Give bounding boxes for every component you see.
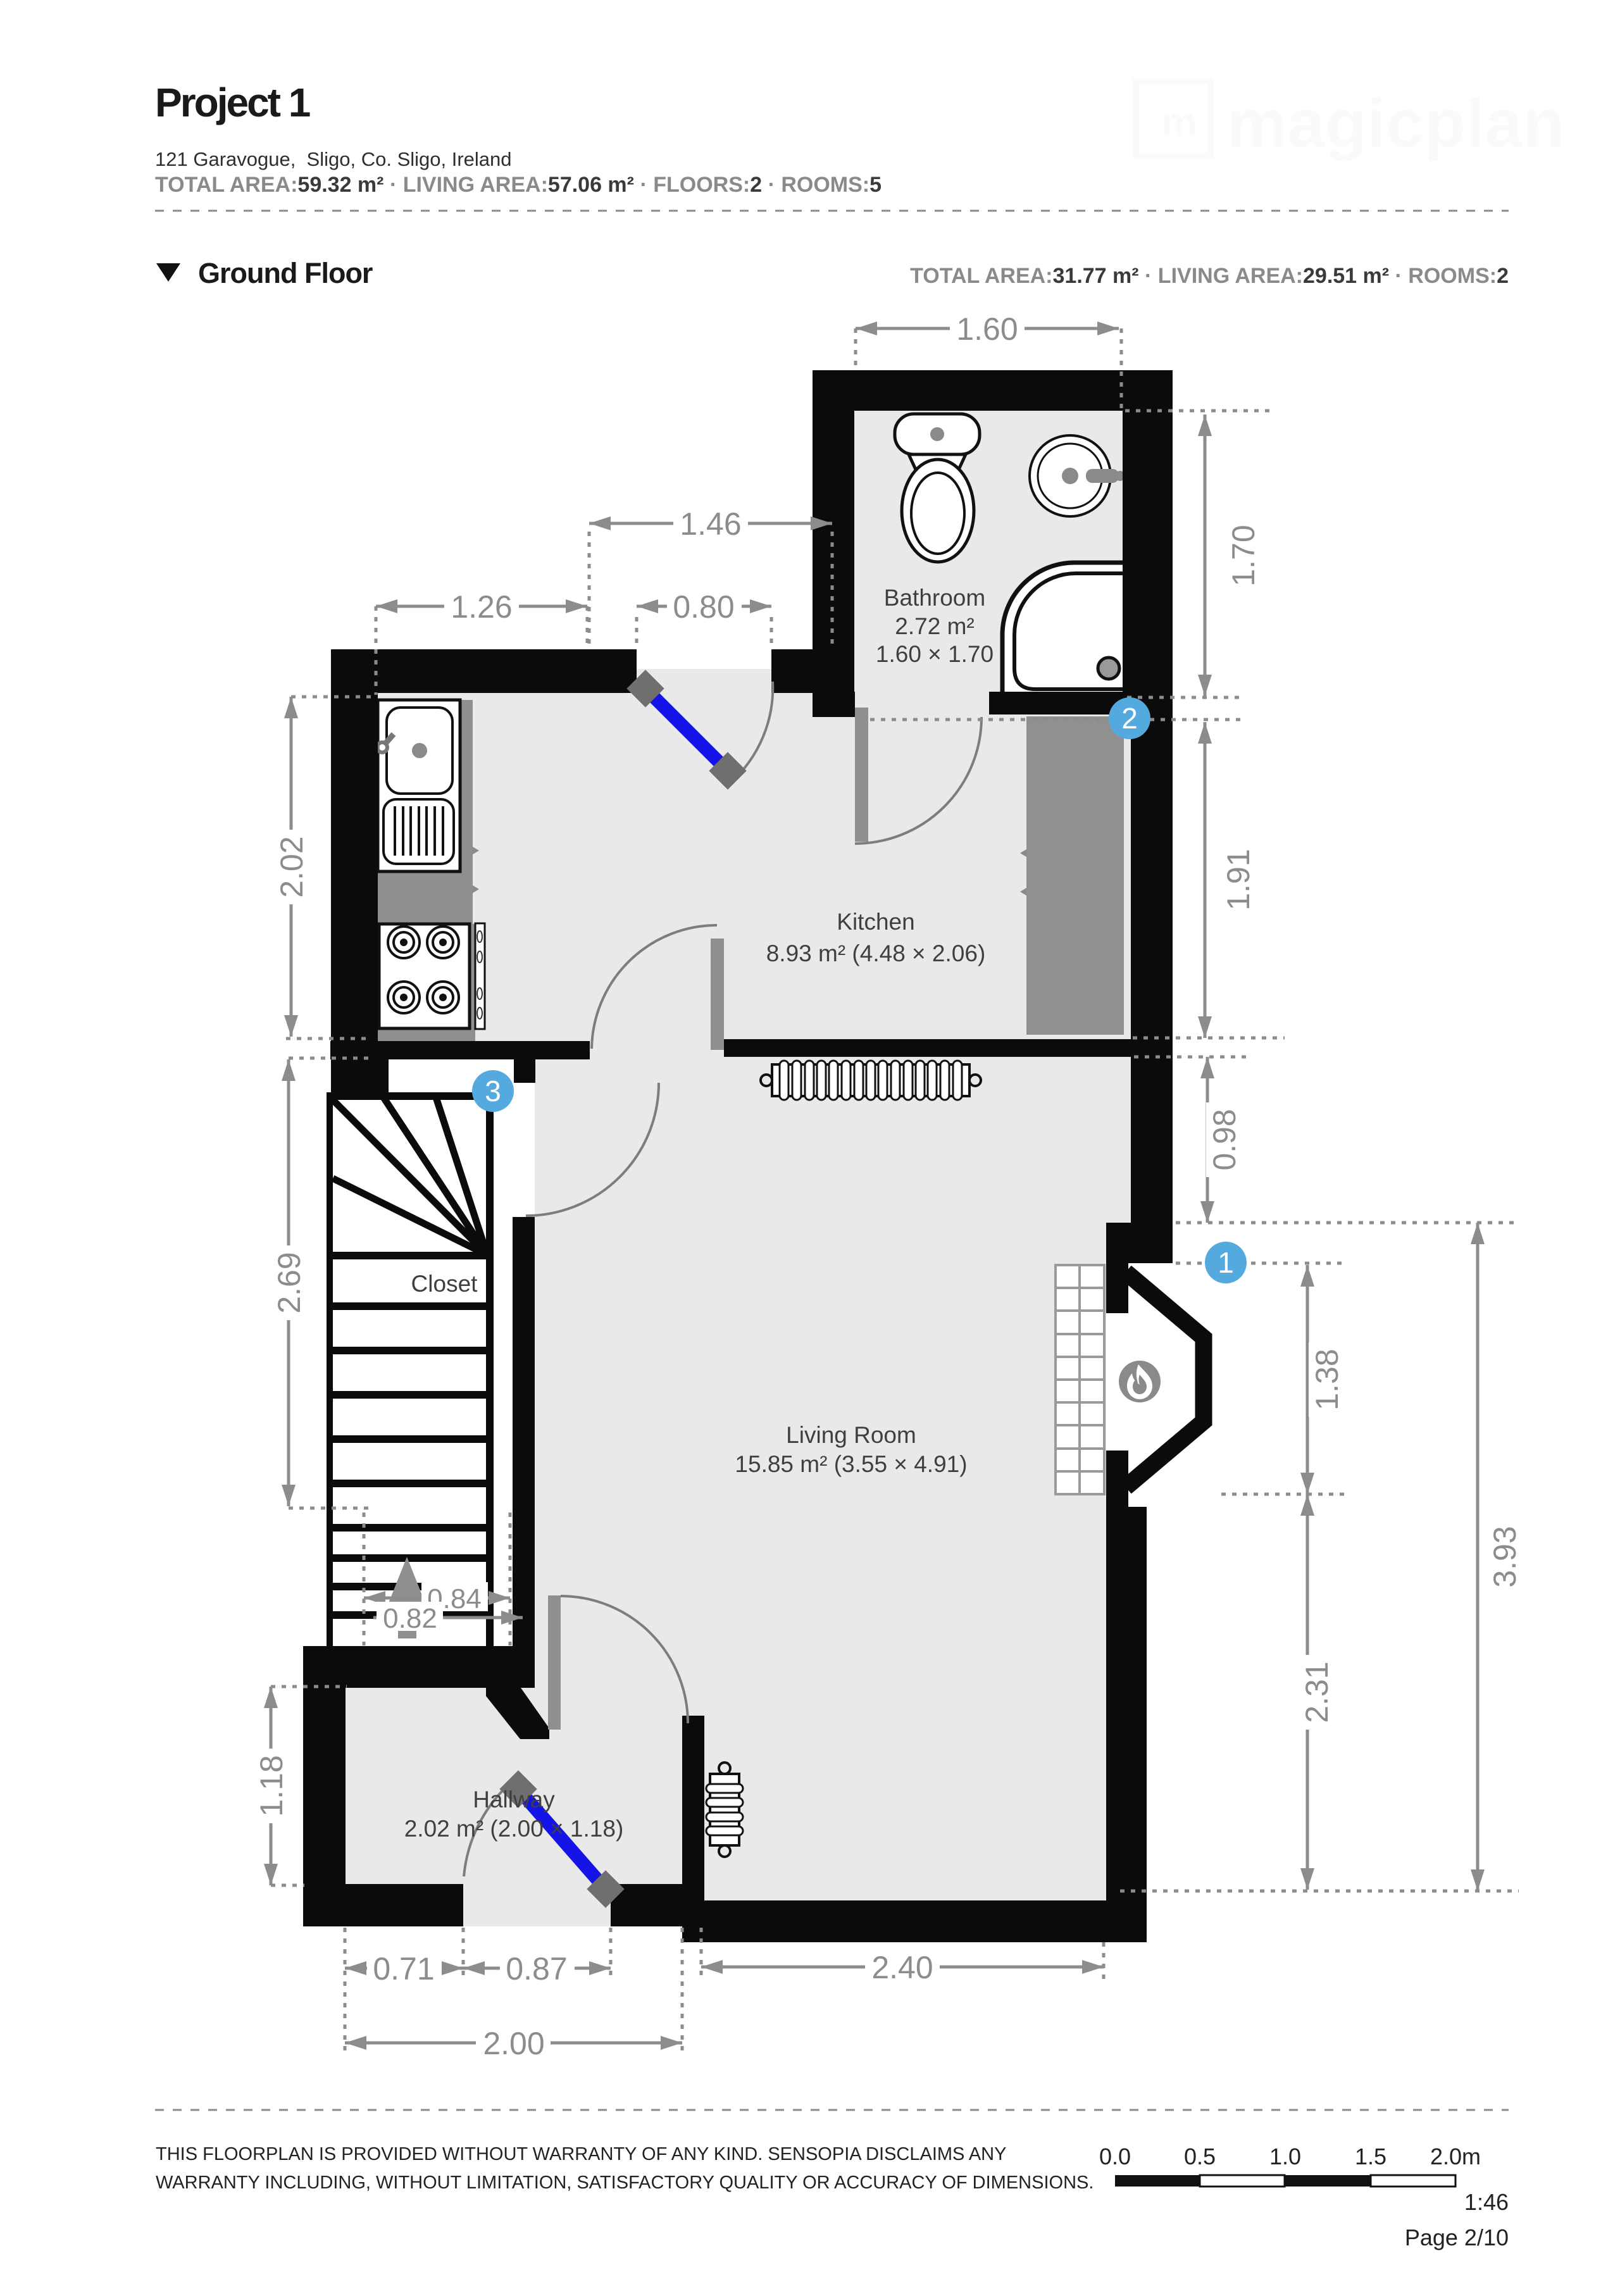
svg-text:Kitchen: Kitchen bbox=[837, 909, 914, 935]
svg-text:0.5: 0.5 bbox=[1184, 2143, 1216, 2169]
svg-text:2.02 m² (2.00 × 1.18): 2.02 m² (2.00 × 1.18) bbox=[404, 1816, 624, 1842]
svg-text:Living Room: Living Room bbox=[786, 1422, 916, 1448]
svg-text:1.60 × 1.70: 1.60 × 1.70 bbox=[876, 641, 994, 667]
svg-text:3.93: 3.93 bbox=[1487, 1526, 1523, 1587]
svg-text:1.46: 1.46 bbox=[680, 506, 741, 542]
svg-text:3: 3 bbox=[485, 1075, 501, 1107]
svg-text:TOTAL AREA:59.32 m² · LIVING A: TOTAL AREA:59.32 m² · LIVING AREA:57.06 … bbox=[155, 173, 882, 197]
svg-text:0.0: 0.0 bbox=[1099, 2143, 1131, 2169]
svg-text:1.5: 1.5 bbox=[1355, 2143, 1386, 2169]
svg-text:1.70: 1.70 bbox=[1226, 525, 1261, 586]
svg-text:1.38: 1.38 bbox=[1309, 1349, 1345, 1410]
svg-text:121 Garavogue, Sligo, Co. Sli: 121 Garavogue, Sligo, Co. Sligo, Ireland bbox=[155, 148, 512, 170]
svg-text:1.0: 1.0 bbox=[1269, 2143, 1301, 2169]
svg-text:0.87: 0.87 bbox=[506, 1951, 567, 1987]
svg-text:1:46: 1:46 bbox=[1464, 2189, 1509, 2215]
svg-text:2.40: 2.40 bbox=[871, 1950, 933, 1985]
svg-text:Ground Floor: Ground Floor bbox=[198, 257, 373, 289]
svg-text:0.98: 0.98 bbox=[1207, 1109, 1242, 1170]
svg-text:2.00: 2.00 bbox=[483, 2026, 544, 2061]
svg-text:8.93 m² (4.48 × 2.06): 8.93 m² (4.48 × 2.06) bbox=[766, 940, 986, 966]
svg-text:0.80: 0.80 bbox=[673, 589, 734, 625]
svg-text:Project 1: Project 1 bbox=[155, 80, 310, 125]
svg-text:WARRANTY INCLUDING, WITHOUT LI: WARRANTY INCLUDING, WITHOUT LIMITATION, … bbox=[156, 2173, 1093, 2193]
svg-text:15.85 m² (3.55 × 4.91): 15.85 m² (3.55 × 4.91) bbox=[735, 1451, 967, 1477]
svg-text:2: 2 bbox=[1121, 702, 1138, 735]
svg-text:2.31: 2.31 bbox=[1299, 1661, 1335, 1723]
svg-text:2.72 m²: 2.72 m² bbox=[895, 613, 974, 639]
svg-text:0.82: 0.82 bbox=[383, 1603, 437, 1634]
svg-text:1.60: 1.60 bbox=[956, 311, 1018, 347]
svg-text:Page 2/10: Page 2/10 bbox=[1405, 2224, 1509, 2250]
svg-text:1.18: 1.18 bbox=[254, 1755, 289, 1816]
svg-text:Bathroom: Bathroom bbox=[884, 585, 985, 611]
svg-text:m: m bbox=[1161, 99, 1197, 145]
svg-text:2.69: 2.69 bbox=[271, 1252, 307, 1313]
svg-text:1: 1 bbox=[1218, 1246, 1234, 1279]
svg-text:2.02: 2.02 bbox=[274, 836, 309, 897]
svg-text:0.71: 0.71 bbox=[373, 1951, 434, 1987]
svg-text:Hallway: Hallway bbox=[473, 1787, 555, 1812]
svg-text:TOTAL AREA:31.77 m² · LIVING A: TOTAL AREA:31.77 m² · LIVING AREA:29.51 … bbox=[910, 264, 1509, 288]
svg-text:Closet: Closet bbox=[411, 1271, 478, 1297]
svg-text:THIS FLOORPLAN IS PROVIDED WIT: THIS FLOORPLAN IS PROVIDED WITHOUT WARRA… bbox=[156, 2144, 1006, 2164]
svg-text:2.0m: 2.0m bbox=[1430, 2143, 1481, 2169]
svg-text:1.26: 1.26 bbox=[451, 589, 512, 625]
svg-text:1.91: 1.91 bbox=[1221, 849, 1256, 910]
svg-text:magicplan: magicplan bbox=[1226, 85, 1564, 161]
